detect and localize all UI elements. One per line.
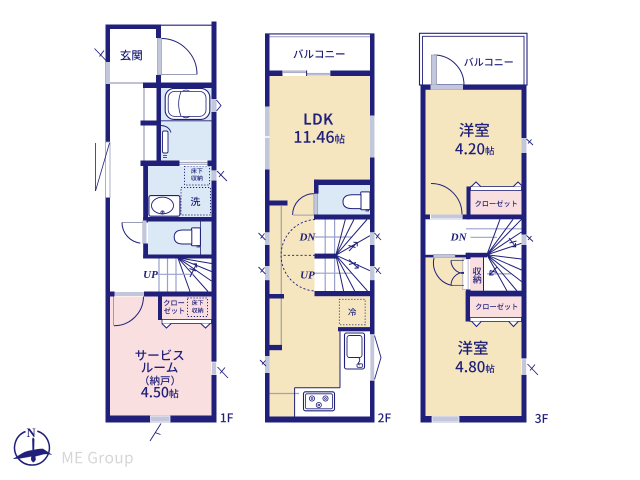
svg-text:DN: DN <box>450 231 468 243</box>
svg-text:UP: UP <box>300 270 315 282</box>
svg-text:N: N <box>27 426 36 440</box>
svg-text:UP: UP <box>143 269 158 281</box>
svg-text:DN: DN <box>298 232 316 244</box>
